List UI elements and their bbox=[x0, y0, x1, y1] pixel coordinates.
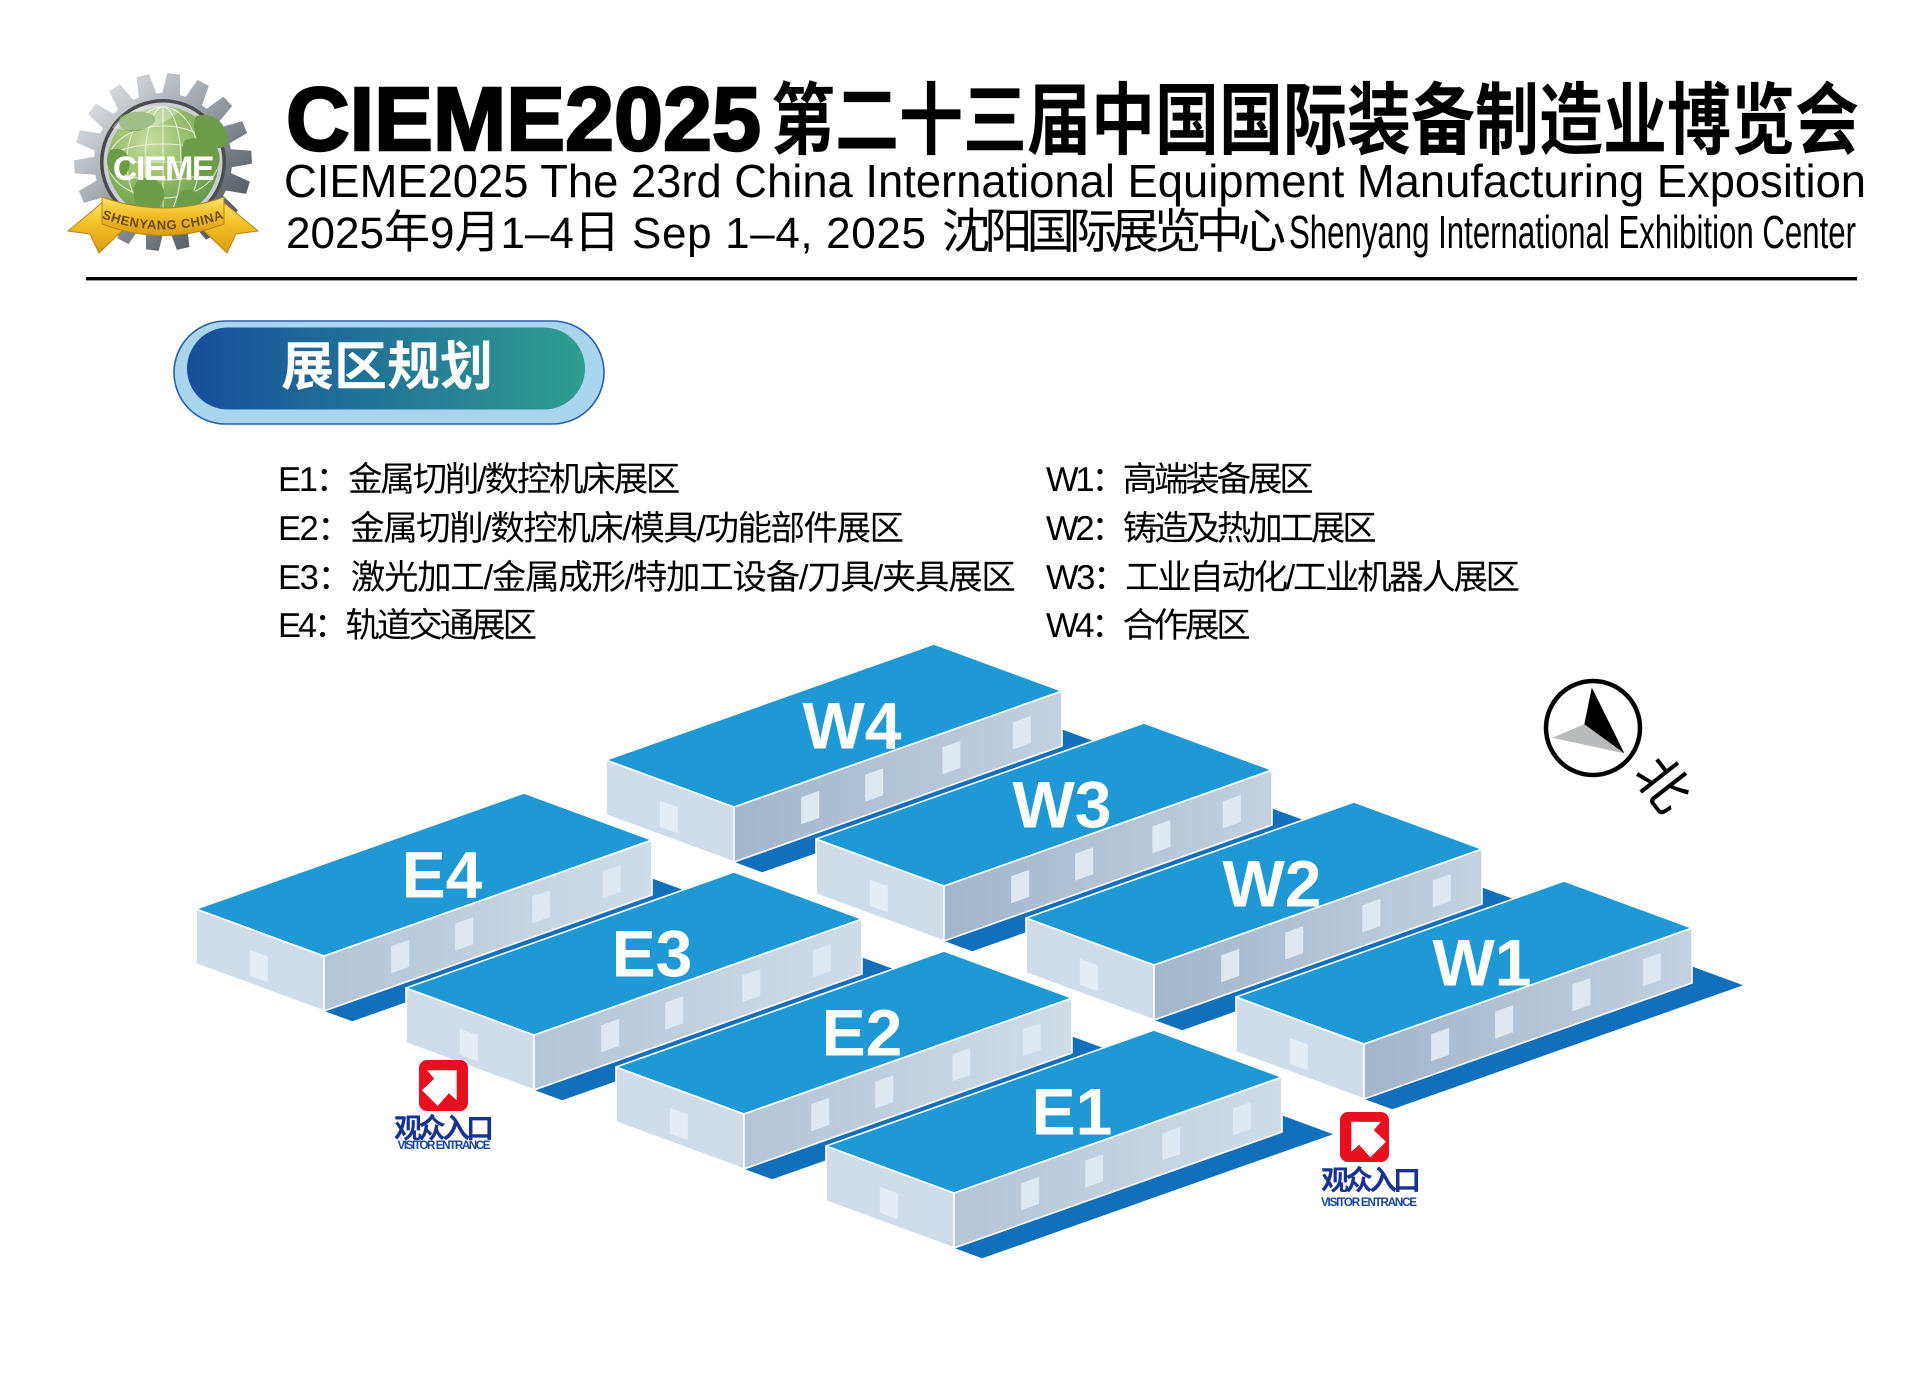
svg-text:Shenyang International Exhibit: Shenyang International Exhibition Center bbox=[1289, 206, 1856, 258]
svg-text:W4: W4 bbox=[803, 689, 902, 763]
svg-text:W3: W3 bbox=[1013, 768, 1112, 842]
svg-text:W1: W1 bbox=[1433, 926, 1532, 1000]
svg-text:E4: E4 bbox=[402, 838, 483, 912]
svg-text:VISITOR ENTRANCE: VISITOR ENTRANCE bbox=[398, 1139, 491, 1152]
svg-text:E1: E1 bbox=[1032, 1075, 1113, 1149]
svg-text:W2: W2 bbox=[1223, 847, 1322, 921]
svg-text:Sep 1–4, 2025: Sep 1–4, 2025 bbox=[632, 209, 926, 258]
svg-text:VISITOR ENTRANCE: VISITOR ENTRANCE bbox=[1321, 1196, 1417, 1209]
svg-text:CIEME2025 The 23rd China Inter: CIEME2025 The 23rd China International E… bbox=[284, 155, 1866, 207]
svg-text:E3: E3 bbox=[612, 917, 693, 991]
svg-text:E2: E2 bbox=[822, 996, 903, 1070]
svg-text:CIEME: CIEME bbox=[113, 150, 214, 188]
